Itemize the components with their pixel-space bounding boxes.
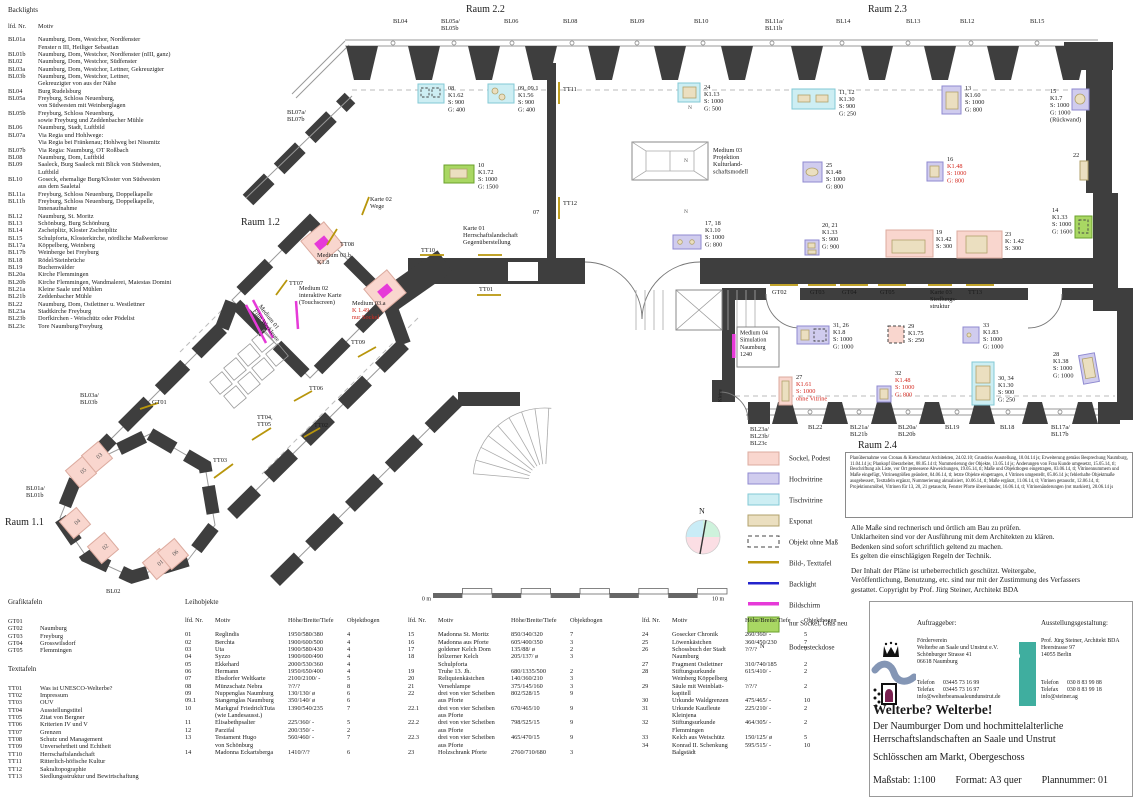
- list-row: GT01: [8, 618, 139, 625]
- plan-label: BL18: [1000, 424, 1014, 431]
- exhibit-item: 27K1.61S: 1000ohne Vitrine: [779, 374, 827, 405]
- table-row: 12Parzifal200/350/ -2: [185, 727, 390, 734]
- table-row: 34Konrad II. Schenkung Balgstädt595/515/…: [642, 742, 847, 757]
- legend-row: Sockel, Podest: [748, 452, 830, 465]
- list-row: Gekreuzigter von aus der Nähe: [8, 80, 171, 87]
- room-label: Raum 2.3: [868, 4, 907, 15]
- exponat-icon: [801, 330, 809, 340]
- table-row: 17goldener Kelch Dom135/88/ ø2: [408, 646, 620, 653]
- table-row: 03Uta1900/580/4304: [185, 646, 390, 653]
- exponat-icon: [816, 95, 828, 102]
- list-row: TT05Zitat von Bergner: [8, 714, 139, 721]
- client-contact: Telefon03445 73 16 99Telefax03445 73 16 …: [917, 680, 1000, 701]
- plan-label: BL21a/BL21b: [850, 424, 869, 438]
- list-row: TT10Herrschaftslandschaft: [8, 751, 139, 758]
- panel-label: TT04,TT05: [257, 414, 273, 428]
- list-row: Via Regia bei Fränkenau; Hohlweg bei Nis…: [8, 139, 171, 146]
- list-row: BL11bFreyburg, Schloss Neuenburg, Doppel…: [8, 198, 171, 205]
- list-row: GT05Flemmingen: [8, 647, 139, 654]
- legend-row: Hochvitrine: [748, 473, 822, 484]
- plan-label: Medium 02interaktive Karte(Touchscreen): [299, 285, 342, 306]
- exhibit-label: 20, 21K1.33S: 900G: 900: [822, 222, 839, 251]
- panel-label: TT01: [479, 286, 493, 293]
- scalebar-label: 10 m: [712, 597, 725, 603]
- list-row: TT12Sakraltopographie: [8, 766, 139, 773]
- list-row: TT03OUV: [8, 699, 139, 706]
- list-row: BL02Naumburg, Dom, Westchor, Südfenster: [8, 58, 171, 65]
- table-row: 02Berchta1900/600/5004: [185, 639, 390, 646]
- exponat-icon: [808, 250, 816, 254]
- list-row: TT01Was ist UNESCO-Welterbe?: [8, 685, 139, 692]
- legend-swatch: [748, 515, 779, 526]
- panel-marker: Karte 02Wege: [362, 196, 392, 215]
- list-row: BL07aVia Regia und Hohlwege:: [8, 132, 171, 139]
- exponat-icon: [976, 366, 990, 383]
- exponat-icon: [683, 87, 696, 98]
- exhibit-item: 11, 12K1.30S: 900G: 250: [792, 89, 856, 118]
- exhibit-item: 31, 26K1.8S: 1000G: 1000: [797, 322, 853, 351]
- exhibit-label: 27K1.61S: 1000ohne Vitrine: [796, 374, 827, 403]
- legend-label: Sockel, Podest: [789, 454, 830, 462]
- plan-label: BL13: [906, 18, 920, 25]
- list-row: BL20bKirche Flemmingen, Wandmalerei, Mai…: [8, 279, 171, 286]
- plan-label: BL02: [106, 588, 120, 595]
- list-row: BL06Naumburg, Stadt, Luftbild: [8, 124, 171, 131]
- exhibit-item: 30, 34K1.30S: 900G: 250: [972, 362, 1015, 405]
- plan-label: BL12: [960, 18, 974, 25]
- table-row: 22.1drei von vier Scheiben aus Pforte670…: [408, 705, 620, 720]
- legend-row: Exponat: [748, 515, 812, 526]
- exhibit-label: 32K1.48S: 1000G: 800: [895, 370, 914, 399]
- list-row: BL23aStadtkirche Freyburg: [8, 308, 171, 315]
- panel-label: TT09: [351, 339, 365, 346]
- table-row: 07Ebsdorfer Weltkarte2100/2100/ -5: [185, 675, 390, 682]
- panel-marker: TT10: [420, 247, 444, 255]
- legend-label: Tischvitrine: [789, 496, 823, 504]
- exponat-icon: [782, 381, 789, 401]
- col-motiv: Motiv: [38, 23, 53, 30]
- panel-label: GT01: [152, 399, 167, 406]
- list-row: Fenster n III, Heiliger Sebastian: [8, 44, 171, 51]
- grafiktafeln-list: Grafiktafeln GT01GT02NaumburgGT03Freybur…: [8, 598, 139, 780]
- designer-address: Prof. Jürg Steiner, Architekt BDA Heerst…: [1041, 638, 1120, 659]
- plan-subtitle: Der Naumburger Dom und hochmittelalterli…: [873, 721, 1063, 746]
- table-row: 09Nuppenglas Naumburg130/130/ ø6: [185, 690, 390, 697]
- table-row: 25Löwenkästchen360/450/2307: [642, 639, 847, 646]
- notes-paragraph-1: Alle Maße sind rechnerisch und örtlich a…: [851, 523, 1136, 561]
- panel-marker: Karte 01HerrschaftslandschaftGegenüberst…: [463, 225, 518, 255]
- list-row: sowie Freyburg und Zeddenbacher Mühle: [8, 117, 171, 124]
- exponat-icon: [678, 240, 683, 245]
- panel-marker: TT09: [351, 339, 376, 357]
- list-row: BL08Naumburg, Dom, Luftbild: [8, 154, 171, 161]
- exhibit-label: 19K1.42S: 300: [936, 229, 952, 250]
- table-row: 22.3drei von vier Scheiben aus Pforte465…: [408, 734, 620, 749]
- list-row: BL18Rödel/Steinbrüche: [8, 257, 171, 264]
- list-row: BL13Schönburg, Burg Schönburg: [8, 220, 171, 227]
- plan-label: BL04: [393, 18, 408, 25]
- list-row: BL03aNaumburg, Dom, Westchor, Lettner, G…: [8, 66, 171, 73]
- plan-label: BL20a/BL20b: [898, 424, 917, 438]
- table-row: 22drei von vier Scheiben aus Pforte802/5…: [408, 690, 620, 705]
- list-row: BL10Goseck, ehemalige Burg/Kloster von S…: [8, 176, 171, 183]
- table-row: 13Testament Hugo von Schönburg560/460/ -…: [185, 734, 390, 749]
- table-row: 08Münzschatz Nebra?/?/?8: [185, 683, 390, 690]
- col-id: lfd. Nr.: [8, 23, 38, 30]
- exhibit-item: 22: [1073, 152, 1088, 180]
- plan-label: BL08: [563, 18, 577, 25]
- exhibit-label: 33K1.83S: 1000G: 1000: [983, 322, 1003, 351]
- list-row: TT11Ritterlich-höfische Kultur: [8, 758, 139, 765]
- room-label: Raum 1.1: [5, 517, 44, 528]
- legend-swatch: [748, 452, 779, 465]
- legend-row: Backlight: [748, 580, 816, 588]
- list-row: BL11aFreyburg, Schloss Neuenburg, Doppel…: [8, 191, 171, 198]
- bodensteckdose-icon: N: [688, 105, 692, 111]
- exponat-icon: [450, 169, 467, 178]
- panel-label: TT10: [421, 247, 435, 254]
- exhibit-item: 24K1.13S: 1000G: 500: [678, 83, 723, 112]
- table-row: 06Hermann1950/650/4004: [185, 668, 390, 675]
- list-row: TT08Schutz und Management: [8, 736, 139, 743]
- legend-label: Objekt ohne Maß: [789, 538, 838, 546]
- list-row: GT04Grosswilsdorf: [8, 640, 139, 647]
- panel-label: TT13: [968, 289, 982, 296]
- vitrine-box: [1075, 216, 1092, 238]
- exponat-icon: [892, 240, 925, 253]
- legend-swatch: [748, 494, 779, 505]
- vitrine-box: [1080, 161, 1088, 180]
- format: Format: A3 quer: [956, 775, 1022, 786]
- exhibit-item: 17, 18K1.10S: 1000G: 800: [673, 220, 724, 249]
- title-block: Auftraggeber: Ausstellungsgestaltung: Fö…: [869, 601, 1133, 797]
- panel-label: GT02: [772, 289, 787, 296]
- legend-label: Bildschirm: [789, 601, 821, 609]
- client-address: Förderverein Welterbe an Saale und Unstr…: [917, 638, 998, 666]
- list-row: TT07Grenzen: [8, 729, 139, 736]
- grafiktafeln-title: Grafiktafeln: [8, 598, 139, 606]
- exhibit-label: 08K1.62S: 900G: 400: [448, 85, 465, 114]
- list-row: GT02Naumburg: [8, 625, 139, 632]
- backlights-title: Backlights: [8, 6, 171, 14]
- exhibit-label: 14K1.33S: 1000G: 1600: [1052, 207, 1072, 236]
- table-row: 20Reliquienkästchen140/360/2103: [408, 675, 620, 682]
- notes-paragraph-2: Der Inhalt der Pläne ist urheberrechtlic…: [851, 566, 1136, 594]
- table-row: 33Kelch aus Weischütz150/125/ ø5: [642, 734, 847, 741]
- panel-label: TT11: [563, 86, 577, 93]
- plan-label: BL03a/BL03b: [80, 392, 99, 406]
- list-row: BL09Saaleck, Burg Saaleck mit Blick von …: [8, 161, 171, 168]
- leihobjekte-table-2: lfd. Nr.MotivHöhe/Breite/TiefeObjektboge…: [408, 617, 620, 756]
- legend-label: Exponat: [789, 517, 812, 525]
- bodensteckdose-icon: N: [684, 158, 688, 164]
- exponat-icon: [499, 94, 505, 100]
- exhibit-item: 33K1.83S: 1000G: 1000: [963, 322, 1003, 351]
- table-row: 23Holzschrank Pforte2760/710/6803: [408, 749, 620, 756]
- exponat-icon: [492, 88, 498, 94]
- list-row: BL23cTore Naumburg/Freyburg: [8, 323, 171, 330]
- list-row: BL03bNaumburg, Dom, Westchor, Lettner,: [8, 73, 171, 80]
- list-row: BL19Buchenwälder: [8, 264, 171, 271]
- exponat-icon: [1075, 94, 1085, 104]
- room-label: Raum 2.2: [466, 4, 505, 15]
- exhibit-label: 31, 26K1.8S: 1000G: 1000: [833, 322, 853, 351]
- legend-swatch: [748, 473, 779, 484]
- vitrine-box: [673, 235, 701, 249]
- panel-label: GT05: [880, 289, 895, 296]
- exhibit-label: 11, 12K1.30S: 900G: 250: [839, 89, 856, 118]
- exhibit-item: 13K1.60S: 1000G: 800: [942, 85, 984, 114]
- plan-label: BL05a/BL05b: [441, 18, 460, 32]
- backlights-rows: BL01aNaumburg, Dom, Westchor, Nordfenste…: [8, 36, 171, 330]
- list-row: TT09Unversehrtheit und Echtheit: [8, 743, 139, 750]
- list-row: BL01bNaumburg, Dom, Westchor, Nordfenste…: [8, 51, 171, 58]
- table-row: 15Madonna St. Moritz850/340/3207: [408, 631, 620, 638]
- exponat-icon: [946, 92, 958, 109]
- panel-label: TT08: [340, 241, 354, 248]
- exhibit-label: 16K1.48S: 1000G: 800: [947, 156, 966, 185]
- table-row: 24Gosecker Chronik260/360/ -5: [642, 631, 847, 638]
- exhibit-item: 09, 09.1K1.56S: 900G: 400: [488, 84, 538, 113]
- room-label: Raum 1.2: [241, 217, 280, 228]
- scale: Maßstab: 1:100: [873, 775, 936, 786]
- panel-marker: TT06: [294, 385, 323, 401]
- exhibit-item: 20, 21K1.33S: 900G: 900: [805, 222, 839, 255]
- table-header: lfd. Nr.MotivHöhe/Breite/TiefeObjektboge…: [408, 617, 620, 624]
- list-row: TT02Impressum: [8, 692, 139, 699]
- plan-label: BL19: [945, 424, 959, 431]
- panel-label: Karte 01HerrschaftslandschaftGegenüberst…: [463, 225, 518, 246]
- list-row: Innenaufnahme: [8, 205, 171, 212]
- plan-label: BL01a/BL01b: [26, 485, 45, 499]
- exhibit-label: 24K1.13S: 1000G: 500: [704, 84, 723, 113]
- plan-label: BL22: [808, 424, 822, 431]
- exhibit-item: 19K1.42S: 300: [886, 229, 952, 257]
- list-row: BL15Schulpforta, Klosterkirche, nördlich…: [8, 235, 171, 242]
- list-row: BL12Naumburg, St. Moritz: [8, 213, 171, 220]
- plan-label: BL17a/BL17b: [1051, 424, 1070, 438]
- leihobjekte-table-3: lfd. Nr.MotivHöhe/Breite/TiefeObjektboge…: [642, 617, 847, 756]
- exponat-icon: [806, 168, 818, 176]
- list-row: BL04Burg Rudelsburg: [8, 88, 171, 95]
- email: info@steiner.ag: [1041, 694, 1102, 701]
- table-row: 21Versehlampe375/145/1603: [408, 683, 620, 690]
- panel-label: Karte 02Wege: [370, 196, 392, 210]
- table-row: 32Stiftungsurkunde Flemmingen464/305/ -2: [642, 719, 847, 734]
- plan-sheet: 03050402010608K1.62S: 900G: 40009, 09.1K…: [0, 0, 1139, 807]
- panel-marker: TT03: [213, 457, 233, 478]
- plan-label: BL15: [1030, 18, 1044, 25]
- email: info@welterbeansaaleundunstrut.de: [917, 694, 1000, 701]
- exhibit-label: 25K1.48S: 1000G: 800: [826, 162, 845, 191]
- designer-contact: Telefon030 8 83 99 88Telefax030 8 83 99 …: [1041, 680, 1102, 701]
- table-row: 29Säule mit Weinblatt- kapitell?/?/?2: [642, 683, 847, 698]
- legend-label: Bild-, Texttafel: [789, 559, 832, 567]
- table-header: lfd. Nr.MotivHöhe/Breite/TiefeObjektboge…: [185, 617, 390, 624]
- table-row: 01Reglindis1950/580/3804: [185, 631, 390, 638]
- plan-label: BL07a/BL07b: [287, 109, 306, 123]
- table-row: 10Markgraf FriedrichTuta (wie Landesauss…: [185, 705, 390, 720]
- panel-marker: TT01: [477, 286, 501, 295]
- table-header: lfd. Nr.MotivHöhe/Breite/TiefeObjektboge…: [642, 617, 847, 624]
- list-row: BL20aKirche Flemmingen: [8, 271, 171, 278]
- compass-n: N: [699, 506, 705, 515]
- exhibit-item: 10K1.72S: 1000G: 1500: [444, 162, 498, 191]
- exponat-icon: [967, 333, 971, 337]
- list-row: BL07bVia Regia: Naumburg, OT Roßbach: [8, 147, 171, 154]
- table-row: 28Stiftungsurkunde Weinberg Köppelberg61…: [642, 668, 847, 683]
- panel-label: GT04: [842, 289, 858, 296]
- exponat-icon: [880, 389, 888, 399]
- exhibit-item: 08K1.62S: 900G: 400: [418, 84, 465, 113]
- exhibit-item: 32K1.48S: 1000G: 800: [877, 370, 914, 402]
- legend-row: Tischvitrine: [748, 494, 823, 505]
- exhibit-item: 25K1.48S: 1000G: 800: [803, 162, 845, 191]
- panel-label: GT03: [810, 289, 825, 296]
- legend-label: Backlight: [789, 580, 816, 588]
- list-row: BL01aNaumburg, Dom, Westchor, Nordfenste…: [8, 36, 171, 43]
- exponat-icon: [976, 386, 990, 400]
- list-row: GT03Freyburg: [8, 633, 139, 640]
- list-row: BL05bFreyburg, Schloss Neuenburg,: [8, 110, 171, 117]
- panel-label: TT06: [309, 385, 323, 392]
- list-row: BL17aKöppelberg, Weinberg: [8, 242, 171, 249]
- list-row: BL14Zscheiplitz, Kloster Zscheiplitz: [8, 227, 171, 234]
- plan-label: BL09: [630, 18, 644, 25]
- table-row: 16Madonna aus Pforte605/400/3503: [408, 639, 620, 646]
- panel-label: TT03: [213, 457, 227, 464]
- exhibit-item: 29K1.75S: 250: [888, 323, 924, 344]
- plan-label: 07: [533, 209, 539, 216]
- table-row: 22.2drei von vier Scheiben aus Pforte798…: [408, 719, 620, 734]
- plan-label: Medium 03ProjektionKulturland-schaftsmod…: [713, 147, 748, 176]
- welterbe-logo-icon: [870, 638, 916, 710]
- panel-marker: TT12: [559, 197, 577, 219]
- exhibit-label: 23K: 1.42S: 300: [1005, 231, 1024, 252]
- backlights-header: lfd. Nr. Motiv: [8, 23, 171, 30]
- list-row: TT13Siedlungsstruktur und Bewirtschaftun…: [8, 773, 139, 780]
- list-row: TT06Kriterien IV und V: [8, 721, 139, 728]
- plan-label: BL14: [836, 18, 851, 25]
- plan-title: Welterbe? Welterbe!: [873, 702, 992, 718]
- table-row: 18hölzerner Kelch Schulpforta205/137/ ø3: [408, 653, 620, 668]
- table-row: 11Elisabethpsalter225/360/ -5: [185, 719, 390, 726]
- list-row: BL22Naumburg, Dom, Ostlettner u. Westlet…: [8, 301, 171, 308]
- plan-label: BL11a/BL11b: [765, 18, 784, 32]
- exponat-icon: [690, 240, 695, 245]
- list-row: BL05aFreyburg, Schloss Neuenburg,: [8, 95, 171, 102]
- table-row: 26Schossbuch der Stadt Naumburg?/?/?7: [642, 646, 847, 661]
- table-row: 09.1Stangenglas Naumburg350/140/ ø6: [185, 697, 390, 704]
- panel-label: TT02: [314, 422, 328, 429]
- list-row: BL21bZeddenbacher Mühle: [8, 293, 171, 300]
- panel-label: TT12: [563, 200, 577, 207]
- backlights-list: Backlights lfd. Nr. Motiv BL01aNaumburg,…: [8, 6, 171, 330]
- table-row: 27Fragment Ostlettner310/740/1852: [642, 661, 847, 668]
- exhibit-label: 30, 34K1.30S: 900G: 250: [998, 375, 1015, 404]
- exhibit-label: 28K1.38S: 1000G: 1000: [1053, 351, 1073, 380]
- leihobjekte-table-1: lfd. Nr.MotivHöhe/Breite/TiefeObjektboge…: [185, 617, 390, 756]
- exhibit-item: 15K1.7S: 1000G: 1000(Rückwand): [1050, 88, 1089, 124]
- list-row: BL17bWeinberge bei Freyburg: [8, 249, 171, 256]
- plan-meta: Maßstab: 1:100 Format: A3 quer Plannumme…: [873, 775, 1108, 786]
- plan-number: Plannummer: 01: [1042, 775, 1108, 786]
- texttafeln-title: Texttafeln: [8, 665, 139, 673]
- exhibit-label: 29K1.75S: 250: [908, 323, 924, 344]
- revision-notes: Planübernahme von Cronau & Kretschmar Ar…: [845, 452, 1133, 518]
- panel-marker: TT11: [559, 82, 577, 104]
- exhibit-label: 10K1.72S: 1000G: 1500: [478, 162, 498, 191]
- panel-marker: TT04,TT05: [252, 414, 273, 440]
- exhibit-label: 09, 09.1K1.56S: 900G: 400: [518, 85, 538, 114]
- scalebar-label: 0 m: [422, 597, 432, 603]
- plan-label: BL23a/BL23b/BL23c: [750, 426, 769, 447]
- list-row: BL21aKleine Saale und Mühlen: [8, 286, 171, 293]
- panel-marker: GT02: [770, 285, 798, 296]
- exhibit-item: 14K1.33S: 1000G: 1600: [1052, 207, 1092, 238]
- exponat-icon: [930, 166, 939, 177]
- client-label: Auftraggeber:: [917, 619, 956, 627]
- vitrine-box: [888, 326, 904, 343]
- exhibit-item: 16K1.48S: 1000G: 800: [927, 156, 966, 185]
- exhibit-item: 23K: 1.42S: 300: [957, 231, 1024, 258]
- design-label: Ausstellungsgestaltung:: [1041, 619, 1108, 627]
- exhibit-item: 28K1.38S: 1000G: 1000: [1053, 351, 1099, 384]
- table-row: 30Urkunde Waldgrenzen475/465/ -10: [642, 697, 847, 704]
- exponat-icon: [808, 243, 815, 248]
- room-label: Raum 2.4: [858, 440, 897, 451]
- steiner-logo: steiner.ag: [1019, 642, 1036, 706]
- legend-row: Objekt ohne Maß: [748, 536, 838, 547]
- exhibit-label: 13K1.60S: 1000G: 800: [965, 85, 984, 114]
- list-row: von Südwesten mit Weinberglagen: [8, 102, 171, 109]
- list-row: aus dem Saaletal: [8, 183, 171, 190]
- list-row: Luftbild: [8, 169, 171, 176]
- exhibit-label: 22: [1073, 152, 1079, 159]
- table-row: 31Urkunde Kaufleute Kleinjena225/210/ -2: [642, 705, 847, 720]
- list-row: BL23bDorfkirchen - Weischütz oder Pödeli…: [8, 315, 171, 322]
- legend-swatch: [748, 536, 779, 547]
- plan-label: BL06: [504, 18, 518, 25]
- leihobjekte-title: Leihobjekte: [185, 598, 218, 606]
- exponat-icon: [798, 95, 810, 102]
- legend-row: Bild-, Texttafel: [748, 559, 832, 567]
- legend-label: Hochvitrine: [789, 475, 822, 483]
- exponat-icon: [966, 236, 987, 253]
- table-row: 05Ekkehard2000/530/3604: [185, 661, 390, 668]
- plan-label: Kleine: [718, 389, 723, 402]
- plan-label: BL10: [694, 18, 708, 25]
- plan-location: Schlösschen am Markt, Obergeschoss: [873, 752, 1024, 763]
- table-row: 19Truhe 13. Jh.680/1335/5002: [408, 668, 620, 675]
- table-row: 04Syzzo1900/600/4904: [185, 653, 390, 660]
- table-row: 14Madonna Eckartsberga1410/?/?6: [185, 749, 390, 756]
- legend-row: Bildschirm: [748, 601, 821, 609]
- bodensteckdose-icon: N: [684, 209, 688, 215]
- exhibit-label: 17, 18K1.10S: 1000G: 800: [705, 220, 724, 249]
- list-row: TT04Ausstellungstitel: [8, 707, 139, 714]
